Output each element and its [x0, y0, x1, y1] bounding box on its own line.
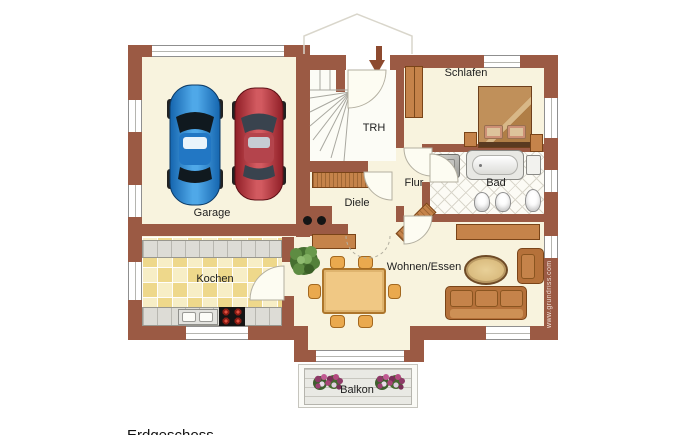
bathroom-sink: [432, 154, 460, 178]
blue-car: [166, 83, 224, 207]
sink-basin: [182, 312, 196, 322]
wall: [396, 206, 404, 222]
room-label-living-dining: Wohnen/Essen: [387, 261, 461, 273]
wardrobe: [405, 66, 423, 118]
watermark: www.grundriss.com: [546, 258, 558, 328]
wall: [336, 70, 345, 92]
bidet: [495, 192, 511, 212]
wall: [310, 161, 368, 172]
window: [544, 236, 558, 258]
chair: [358, 256, 373, 269]
floor-caption: Erdgeschoss: [127, 427, 214, 435]
flue-icon: [317, 216, 326, 225]
window: [544, 98, 558, 138]
garage-door-opening: [152, 45, 284, 57]
sofa: [445, 286, 527, 320]
bed: [478, 86, 532, 148]
sofa-cushion: [500, 290, 523, 307]
flue-icon: [303, 216, 312, 225]
sideboard: [456, 224, 540, 240]
balcony-door-opening: [316, 350, 404, 362]
coffee-table: [464, 255, 508, 285]
porch-gable: [304, 14, 412, 54]
room-label-bathroom: Bad: [486, 177, 506, 189]
chair: [308, 284, 321, 299]
window: [484, 55, 520, 68]
armchair-seat: [521, 254, 535, 279]
wall: [142, 224, 310, 236]
chair: [330, 315, 345, 328]
sink-basin: [199, 312, 213, 322]
room-label-stairwell: TRH: [363, 122, 386, 134]
window: [186, 326, 248, 340]
window: [128, 185, 142, 217]
sofa-cushion: [475, 290, 498, 307]
pillow: [507, 125, 526, 139]
dining-table: [322, 268, 386, 314]
wall: [422, 214, 544, 222]
stairwell-floor: [310, 70, 396, 161]
window: [486, 326, 530, 340]
chair: [330, 256, 345, 269]
kitchen-sink: [178, 309, 218, 325]
wall: [396, 55, 404, 148]
room-label-foyer: Diele: [344, 197, 369, 209]
toilet: [525, 189, 541, 212]
kitchen-counter: [142, 240, 282, 258]
sofa-seat: [450, 309, 523, 318]
floor-plan: Garage TRH Schlafen Flur Bad Diele Koche…: [0, 0, 700, 435]
room-label-hallway: Flur: [405, 177, 424, 189]
sink-basin: [437, 159, 455, 173]
sofa-cushion: [450, 290, 473, 307]
chair: [358, 315, 373, 328]
red-car: [232, 86, 286, 202]
pillow: [484, 125, 503, 139]
flower-box: [374, 371, 406, 393]
armchair: [517, 248, 544, 284]
nightstand: [464, 132, 477, 147]
bathtub: [466, 150, 524, 180]
chair: [388, 284, 401, 299]
window: [128, 100, 142, 132]
sideboard: [312, 172, 369, 188]
chimney: [298, 206, 332, 234]
bay-floor: [308, 326, 410, 350]
toilet: [474, 192, 490, 212]
room-label-kitchen: Kochen: [196, 273, 233, 285]
room-label-garage: Garage: [194, 207, 231, 219]
potted-plant: [287, 241, 321, 279]
bathroom-cabinet: [526, 155, 541, 175]
tub-drain: [479, 164, 482, 167]
nightstand: [530, 134, 543, 152]
room-label-bedroom: Schlafen: [445, 67, 488, 79]
headboard: [479, 142, 531, 147]
window: [128, 262, 142, 300]
stove: [219, 307, 245, 326]
entrance-door-opening: [346, 55, 390, 70]
window: [544, 170, 558, 192]
room-label-balcony: Balkon: [340, 384, 374, 396]
